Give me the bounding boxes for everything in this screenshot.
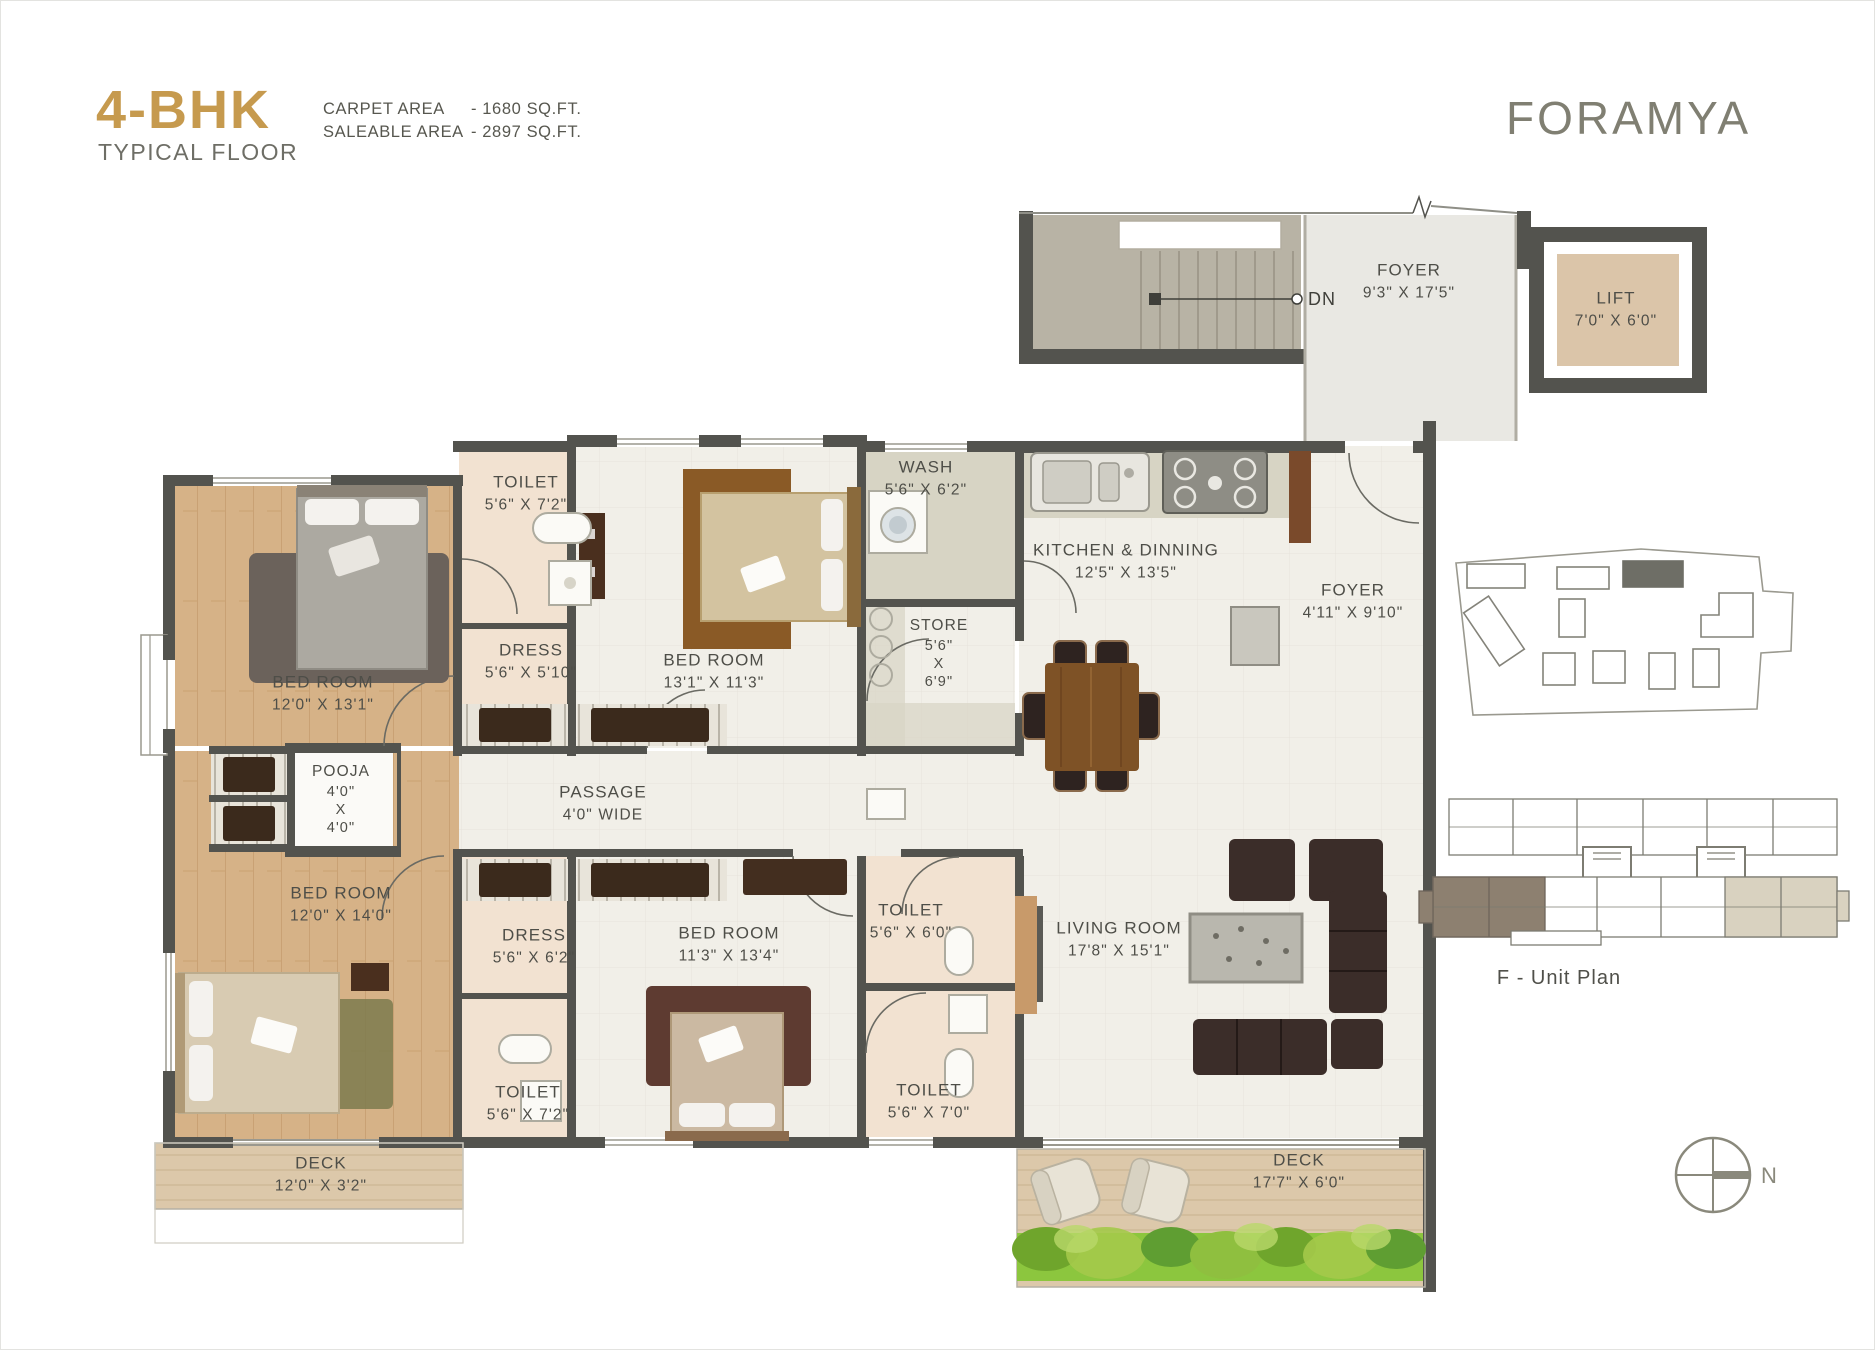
floorplan-page: 4-BHK TYPICAL FLOOR CARPET AREA - 1680 S… [0,0,1875,1350]
saleable-area-row: SALEABLE AREA - 2897 SQ.FT. [323,121,582,144]
room-label-toilet1: TOILET 5'6" X 7'2" [485,470,567,515]
room-label-bedroom2: BED ROOM 13'1" X 11'3" [663,648,764,693]
room-label-bedroom3: BED ROOM 12'0" X 14'0" [290,881,392,926]
carpet-area-label: CARPET AREA [323,98,471,121]
unit-key-plan [1419,799,1849,945]
room-label-dress2: DRESS 5'6" X 6'2" [493,923,575,968]
room-label-bedroom1: BED ROOM 12'0" X 13'1" [272,670,374,715]
carpet-area-row: CARPET AREA - 1680 SQ.FT. [323,98,582,121]
north-compass [1676,1138,1750,1212]
room-label-living: LIVING ROOM 17'8" X 15'1" [1056,916,1181,961]
room-label-kitchen: KITCHEN & DINNING 12'5" X 13'5" [1033,538,1219,583]
site-key-plan [1456,549,1793,715]
room-label-wash: WASH 5'6" X 6'2" [885,455,967,500]
entrance-foyer [1305,197,1517,441]
compass-north-label: N [1761,1163,1778,1189]
room-label-passage: PASSAGE 4'0" WIDE [559,780,647,825]
room-label-store: STORE 5'6" X 6'9" [910,615,969,691]
saleable-area-value: - 2897 SQ.FT. [471,121,582,144]
room-label-pooja: POOJA 4'0" X 4'0" [312,761,370,837]
room-label-deck2: DECK 17'7" X 6'0" [1253,1148,1345,1193]
room-label-dress1: DRESS 5'6" X 5'10" [485,638,577,683]
room-label-foyer-top: FOYER 9'3" X 17'5" [1363,258,1455,303]
bedroom3-bed [175,963,393,1113]
carpet-area-value: - 1680 SQ.FT. [471,98,582,121]
room-label-toilet3: TOILET 5'6" X 6'0" [870,898,952,943]
room-label-toilet2: TOILET 5'6" X 7'2" [487,1080,569,1125]
room-label-foyer-inner: FOYER 4'11" X 9'10" [1303,578,1404,623]
stairs-dn-label: DN [1308,289,1336,310]
room-label-bedroom4: BED ROOM 11'3" X 13'4" [678,921,779,966]
room-label-toilet4: TOILET 5'6" X 7'0" [888,1078,970,1123]
saleable-area-label: SALEABLE AREA [323,121,471,144]
bedroom2-bed [683,469,861,649]
brand-logo: FORAMYA [1506,91,1751,145]
unit-plan-caption: F - Unit Plan [1497,967,1621,990]
page-title: 4-BHK [96,79,271,141]
page-subtitle: TYPICAL FLOOR [98,139,298,166]
room-label-deck1: DECK 12'0" X 3'2" [275,1151,367,1196]
area-summary: CARPET AREA - 1680 SQ.FT. SALEABLE AREA … [323,98,582,144]
room-label-lift: LIFT 7'0" X 6'0" [1575,286,1657,331]
